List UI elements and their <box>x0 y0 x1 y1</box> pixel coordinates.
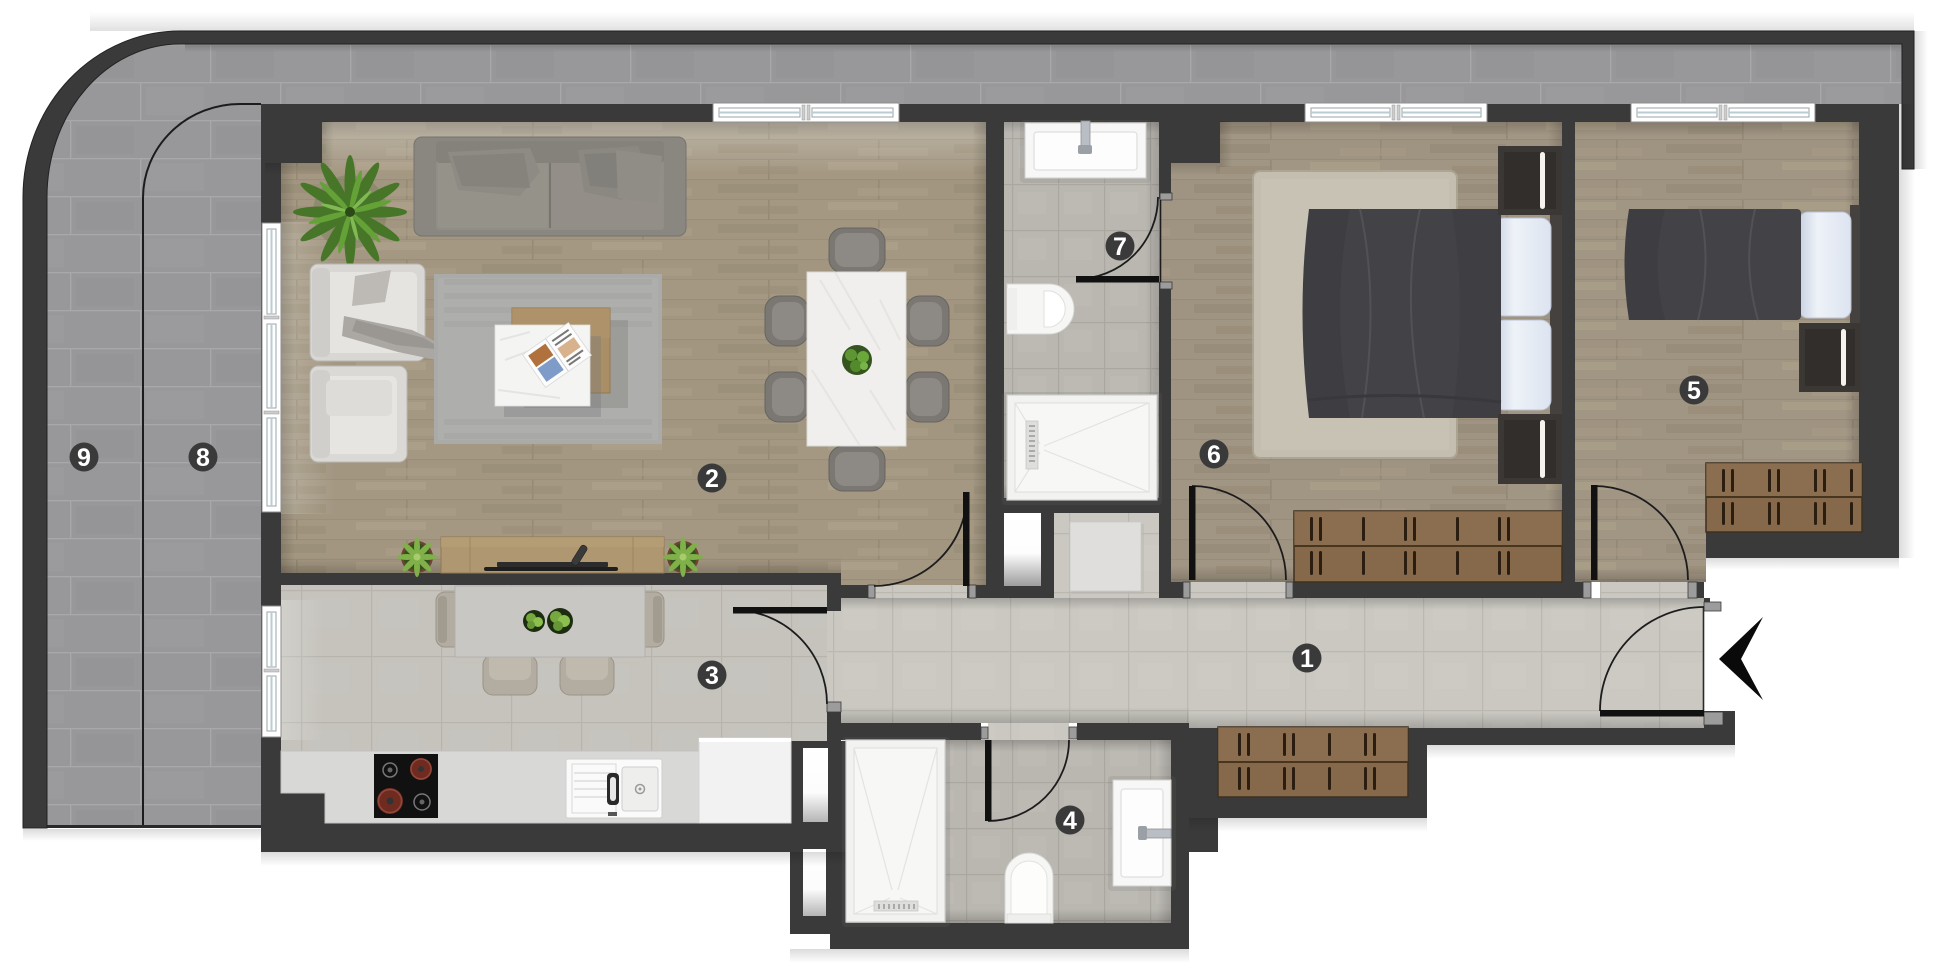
svg-text:4: 4 <box>1063 807 1077 835</box>
svg-text:2: 2 <box>705 465 719 493</box>
svg-text:5: 5 <box>1687 377 1701 405</box>
svg-text:9: 9 <box>77 444 91 472</box>
svg-text:3: 3 <box>705 662 719 690</box>
svg-text:7: 7 <box>1113 233 1127 261</box>
svg-text:6: 6 <box>1207 441 1221 469</box>
svg-text:1: 1 <box>1300 645 1314 673</box>
svg-text:8: 8 <box>196 444 210 472</box>
